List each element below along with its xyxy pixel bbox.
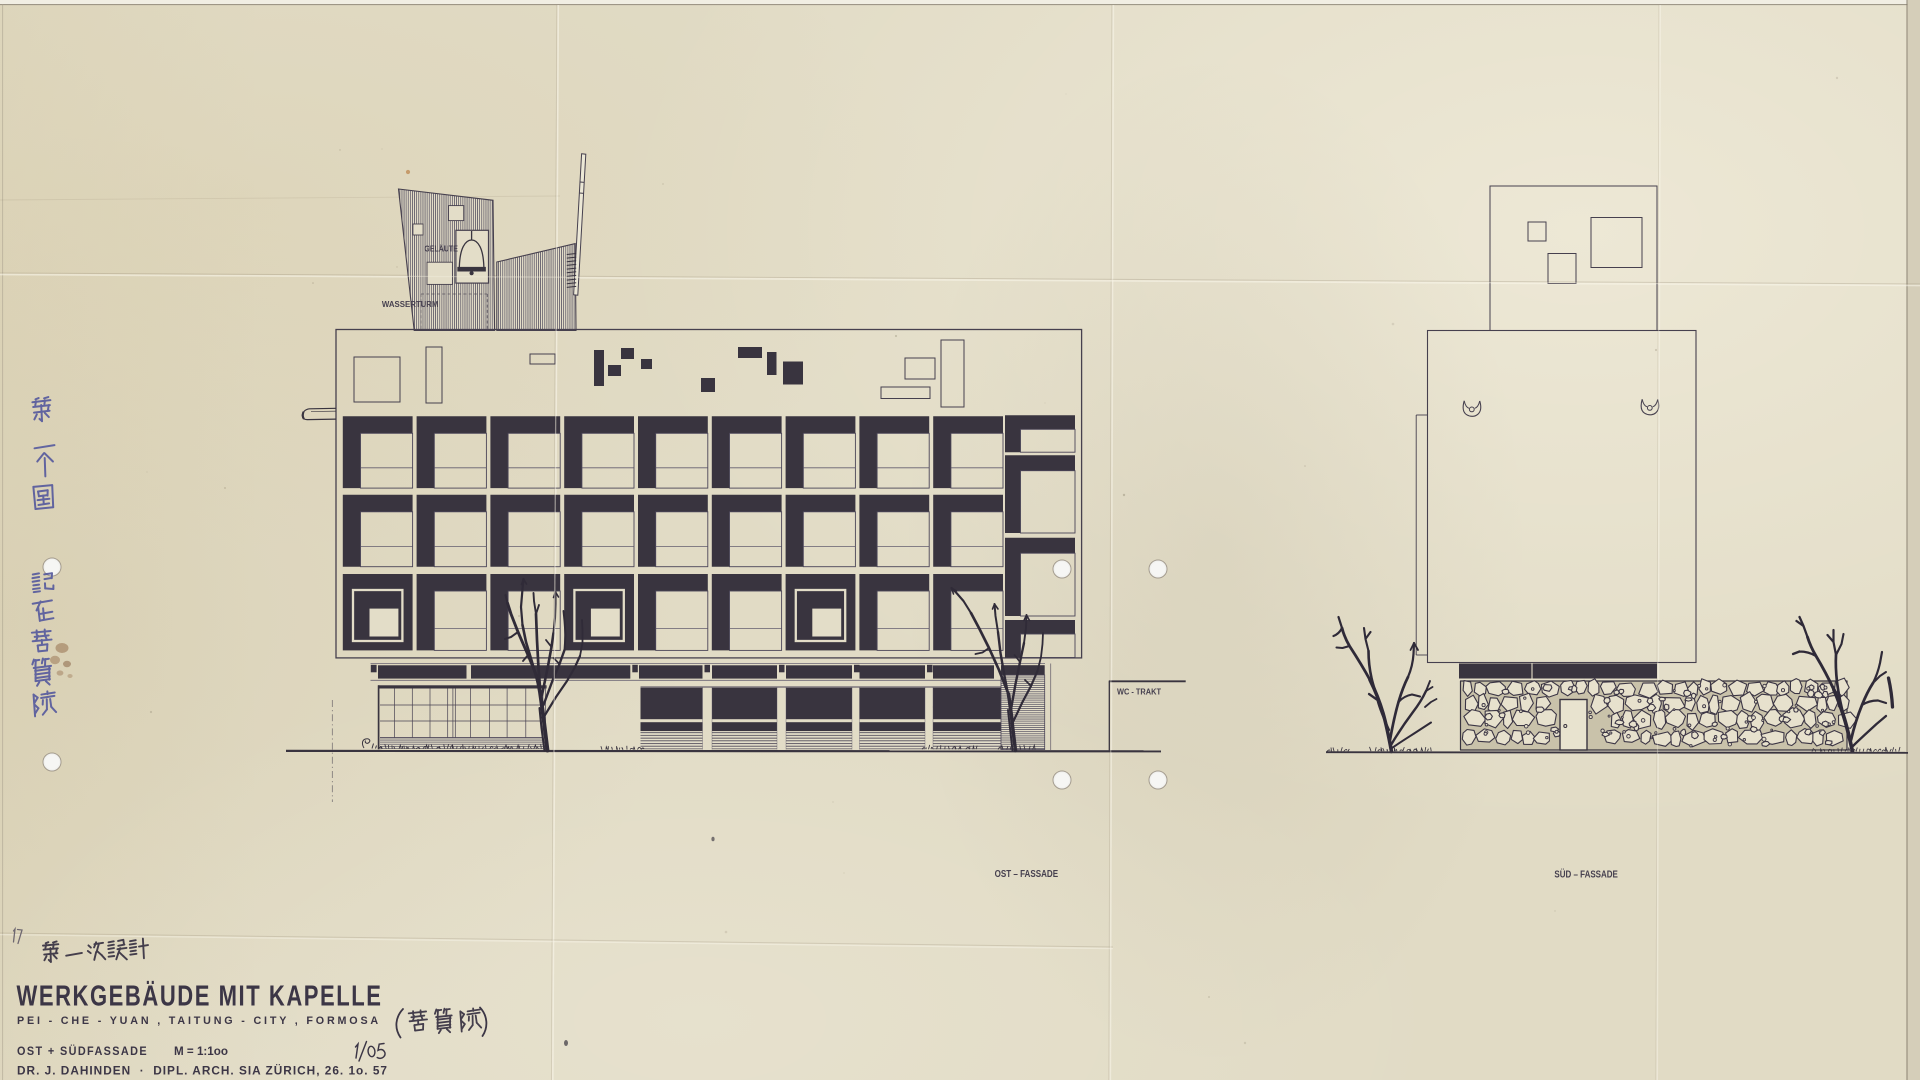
svg-text:M = 1:1oo: M = 1:1oo bbox=[174, 1044, 228, 1058]
svg-text:WERKGEBÄUDE MIT KAPELLE: WERKGEBÄUDE MIT KAPELLE bbox=[17, 981, 383, 1013]
svg-text:DR. J. DAHINDEN · DIPL. ARCH: DR. J. DAHINDEN · DIPL. ARCH. SIA ZÜRICH… bbox=[17, 1064, 388, 1078]
svg-text:OST – FASSADE: OST – FASSADE bbox=[995, 869, 1059, 880]
svg-text:SÜD – FASSADE: SÜD – FASSADE bbox=[1554, 870, 1618, 881]
svg-text:GELÄUTE: GELÄUTE bbox=[424, 244, 458, 253]
svg-text:WASSERTURM: WASSERTURM bbox=[382, 299, 439, 309]
svg-text:WC - TRAKT: WC - TRAKT bbox=[1117, 688, 1161, 697]
svg-text:PEI - CHE - YUAN , TAITUNG - C: PEI - CHE - YUAN , TAITUNG - CITY , FORM… bbox=[17, 1015, 381, 1027]
svg-text:OST + SÜDFASSADE: OST + SÜDFASSADE bbox=[17, 1044, 148, 1058]
